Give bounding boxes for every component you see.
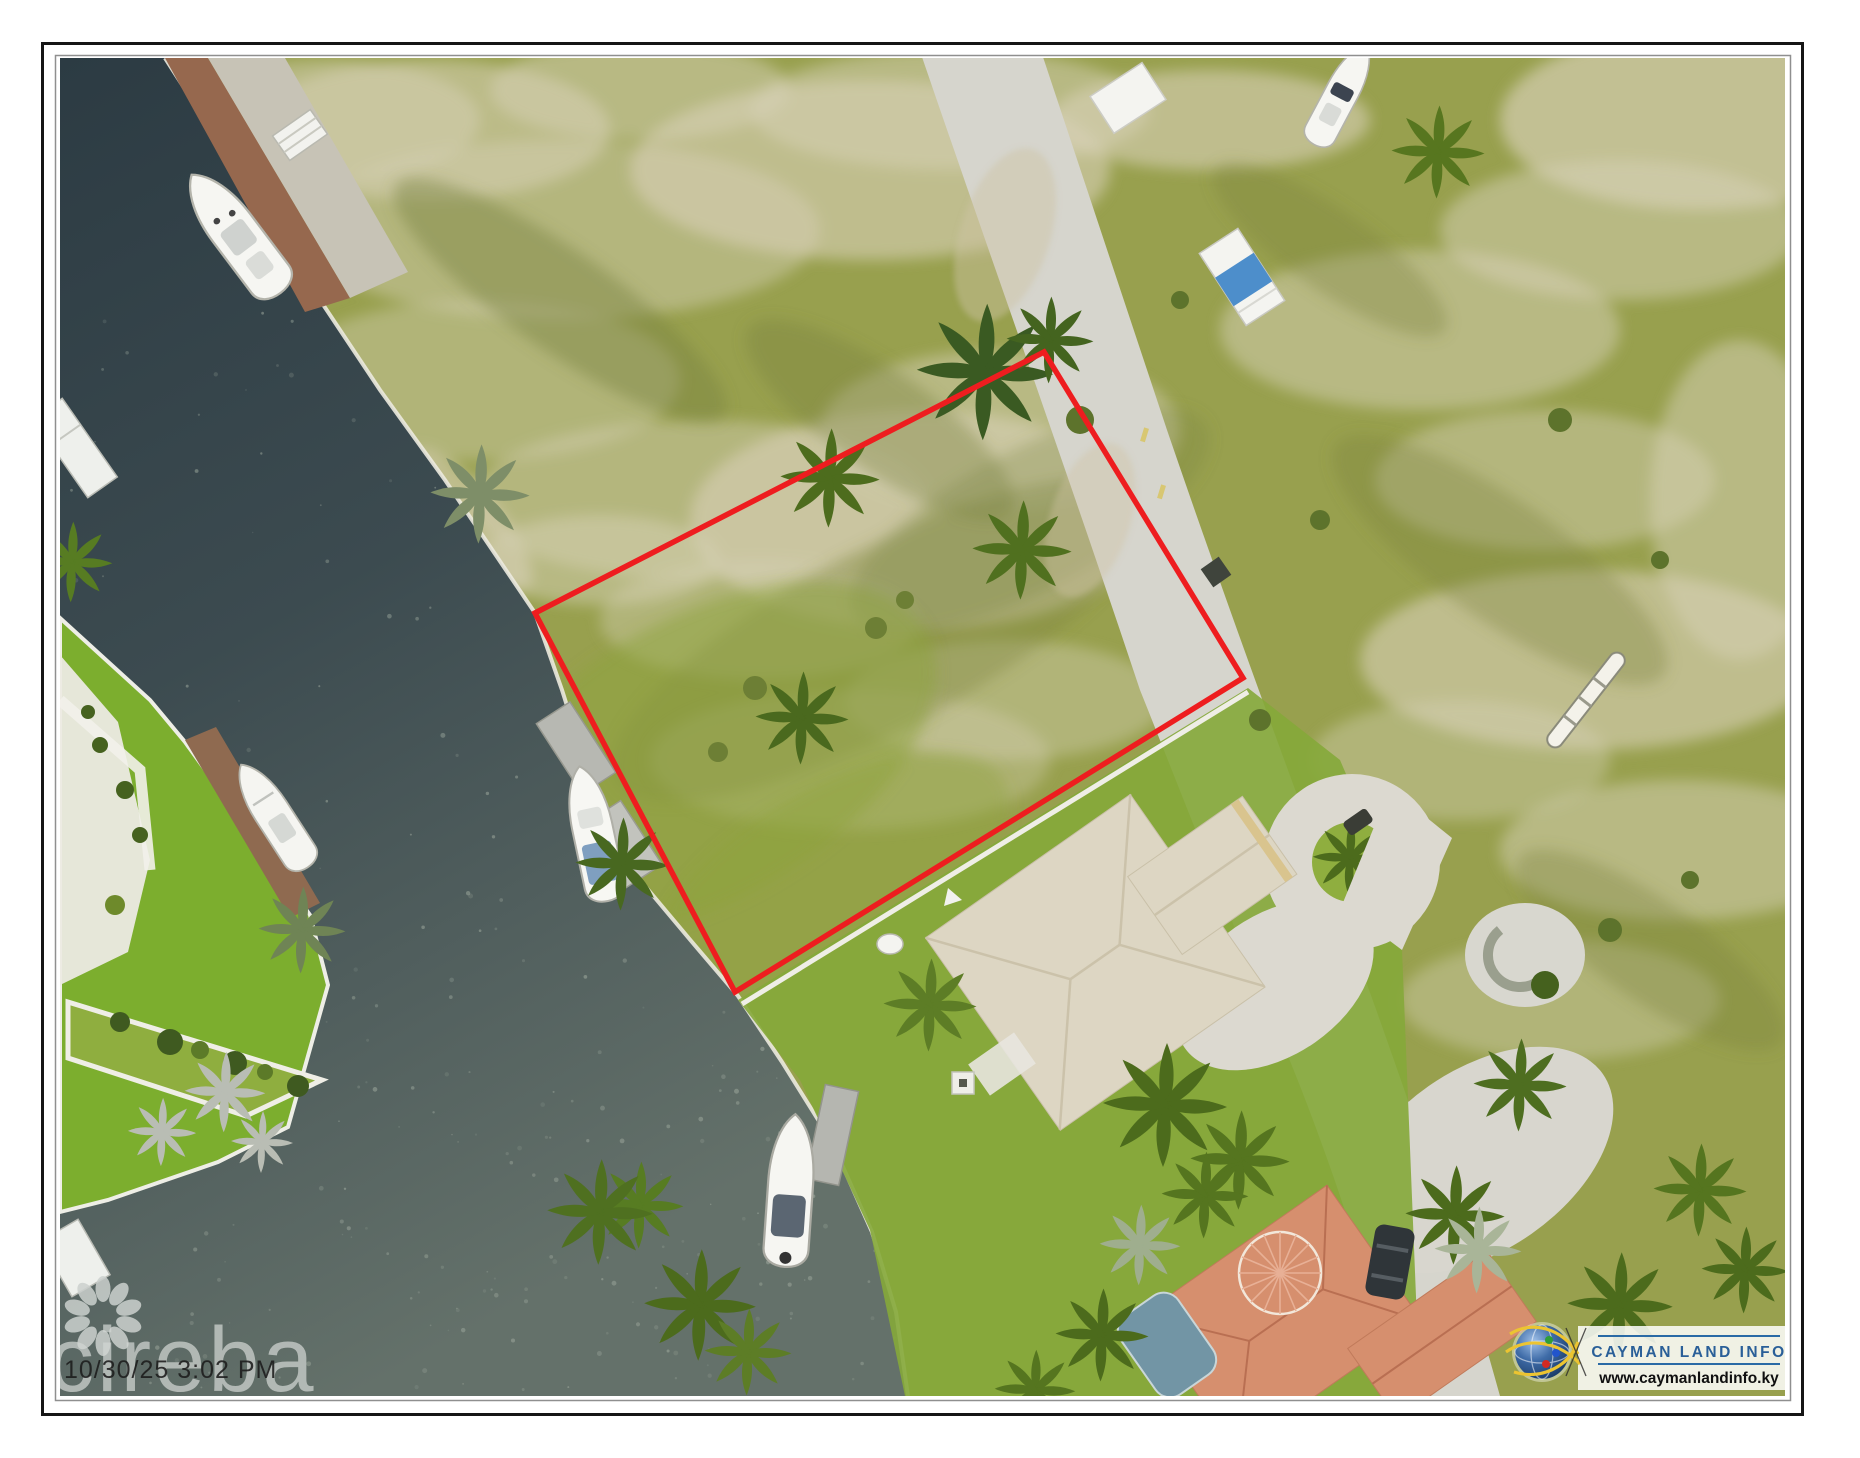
turret-roof: [1239, 1232, 1321, 1314]
aerial-photo: cireba 10/30/25 3:02 PM CAYMAN LAND INFO…: [32, 30, 1860, 1451]
timestamp: 10/30/25 3:02 PM: [64, 1356, 277, 1384]
provider-url: www.caymanlandinfo.ky: [1598, 1370, 1779, 1387]
provider-name: CAYMAN LAND INFO: [1591, 1344, 1786, 1361]
patio-pad: [952, 1072, 974, 1094]
provider-logo: CAYMAN LAND INFO www.caymanlandinfo.ky: [1506, 1322, 1788, 1390]
satellite-dish: [877, 934, 903, 954]
listing-image: cireba 10/30/25 3:02 PM CAYMAN LAND INFO…: [0, 0, 1860, 1458]
